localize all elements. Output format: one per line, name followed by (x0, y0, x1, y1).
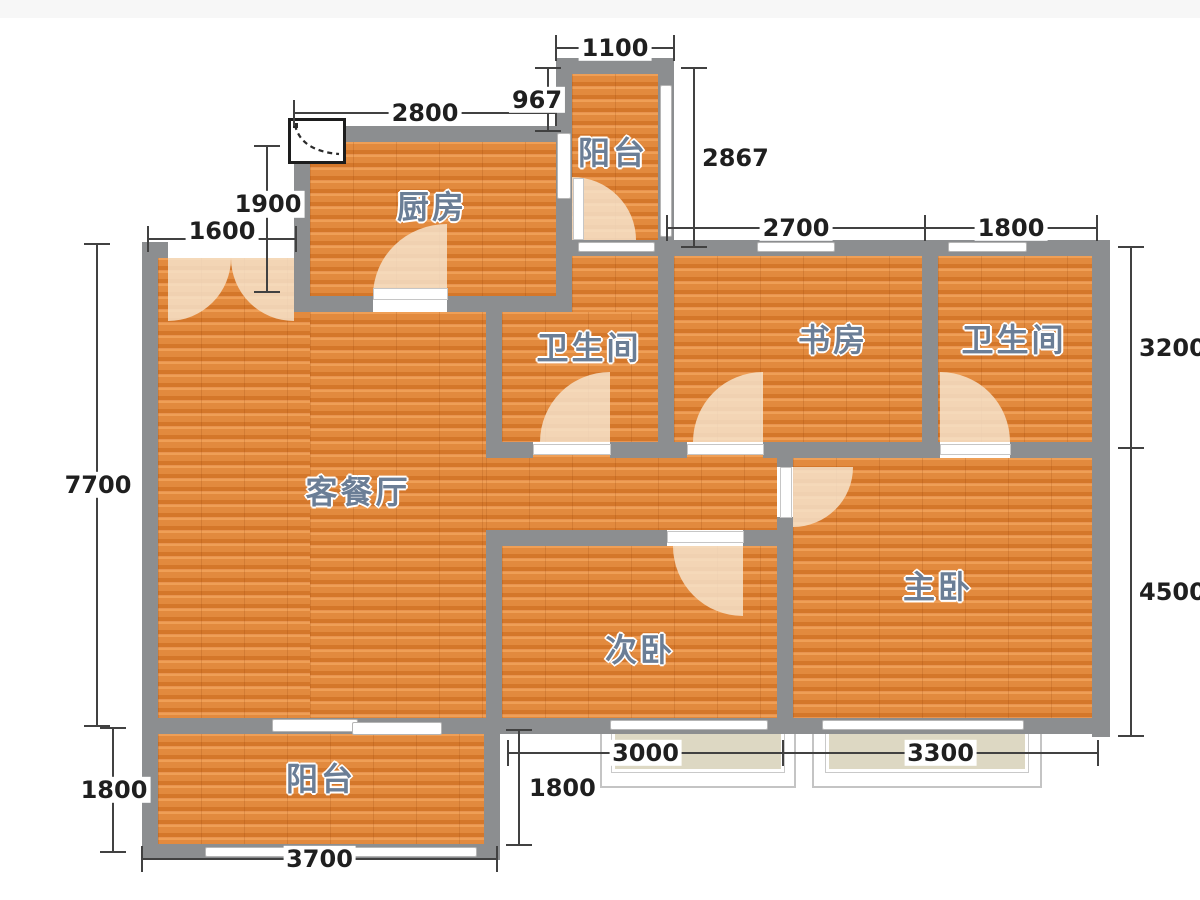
window-balcony-bottom (578, 242, 655, 252)
dimension-kitchen-side: 1900 (266, 146, 268, 292)
entry-door-swing-glyph (291, 121, 343, 161)
dimension-label: 7700 (62, 472, 135, 498)
floor-plan: 厨房 阳台 卫生间 书房 卫生间 客餐厅 次卧 主卧 阳台 1100 2800 … (0, 0, 1200, 900)
room-floor-hallway (486, 455, 777, 530)
dimension-label: 1600 (186, 218, 259, 244)
dimension-label: 1900 (232, 191, 305, 217)
dimension-label: 1800 (526, 774, 599, 800)
dimension-master-side: 4500 (1130, 448, 1132, 736)
wall-bath-row-bottom (610, 442, 687, 458)
dimension-label: 3300 (904, 740, 977, 766)
door-leaf-bathroom-left (533, 444, 611, 455)
room-label-bathroom-left: 卫生间 (536, 323, 641, 369)
dimension-label: 1800 (78, 777, 151, 803)
dimension-label: 2800 (389, 100, 462, 126)
wall-left-outer (142, 242, 158, 860)
door-leaf-bathroom-right (940, 444, 1011, 455)
room-label-bedroom-second: 次卧 (605, 625, 675, 671)
dimension-label: 967 (509, 86, 565, 112)
dimension-balcony-bottom-side: 1800 (112, 728, 114, 852)
wall-master-left (777, 458, 793, 467)
window-living-balcony-slider (272, 719, 358, 732)
door-leaf-kitchen (373, 288, 448, 300)
window-living-balcony-slider (352, 722, 442, 735)
wall-master-left (777, 517, 793, 734)
room-floor-living (158, 258, 310, 718)
dimension-label: 3000 (609, 740, 682, 766)
dimension-label: 3200 (1136, 334, 1200, 360)
background-band (0, 0, 1200, 18)
wall-top-left-stub (142, 242, 168, 258)
room-floor-bathroom-left (572, 256, 658, 312)
dimension-living-side: 7700 (96, 244, 98, 726)
window-bath-right-top (948, 242, 1027, 252)
wall-bedroom2-top (743, 530, 777, 546)
wall-right-outer (1092, 240, 1110, 737)
room-floor-living (310, 312, 486, 718)
dimension-label: 3700 (283, 846, 356, 872)
window-bedroom-second (610, 720, 768, 730)
dimension-balcony-top-width: 1100 (556, 47, 674, 49)
room-label-balcony-top: 阳台 (578, 128, 648, 174)
door-leaf-bedroom-second (667, 531, 744, 543)
wall-bedroom2-top (486, 530, 667, 546)
dimension-label: 1800 (975, 215, 1048, 241)
dimension-label: 2867 (699, 144, 772, 170)
dimension-bedroom-second-width: 3000 (508, 752, 783, 754)
room-label-living-dining: 客餐厅 (305, 467, 410, 513)
dimension-study-width: 2700 (667, 227, 925, 229)
dimension-balcony-mid-side: 1800 (518, 730, 520, 845)
wall-kitchen-bottom (447, 296, 572, 312)
room-label-study: 书房 (798, 315, 868, 361)
wall-bath-row-bottom (486, 442, 533, 458)
wall-bath-row-bottom (763, 442, 940, 458)
room-label-kitchen: 厨房 (397, 182, 467, 228)
dimension-kitchen-top-offset: 967 (547, 68, 549, 131)
dimension-balcony-top-height: 2867 (693, 68, 695, 247)
dimension-label: 2700 (760, 215, 833, 241)
wall-mid-vertical-upper (486, 296, 502, 442)
window-bedroom-master (822, 720, 1024, 730)
dimension-bedroom-master-width: 3300 (783, 752, 1098, 754)
door-leaf-study (687, 444, 764, 455)
wall-study-bath-divider (922, 256, 938, 442)
door-leaf-balcony-top (573, 178, 584, 240)
room-label-bedroom-master: 主卧 (903, 562, 973, 608)
dimension-balcony-bottom-width: 3700 (142, 858, 497, 860)
window-kitchen-balcony (557, 133, 571, 199)
wall-mid-vertical-lower (486, 530, 502, 734)
wall-kitchen-bottom (294, 296, 373, 312)
entry-door-icon (288, 118, 346, 164)
window-study-top (757, 242, 835, 252)
wall-balcony-bottom-right (484, 718, 500, 860)
room-label-balcony-bottom: 阳台 (286, 754, 356, 800)
dimension-entry-opening: 1600 (148, 238, 296, 240)
room-label-bathroom-right: 卫生间 (961, 315, 1066, 361)
dimension-label: 1100 (579, 35, 652, 61)
dimension-bathroom-right-width: 1800 (925, 227, 1097, 229)
door-leaf-bedroom-master (780, 467, 792, 518)
dimension-upper-right-depth: 3200 (1130, 247, 1132, 448)
dimension-label: 4500 (1136, 579, 1200, 605)
